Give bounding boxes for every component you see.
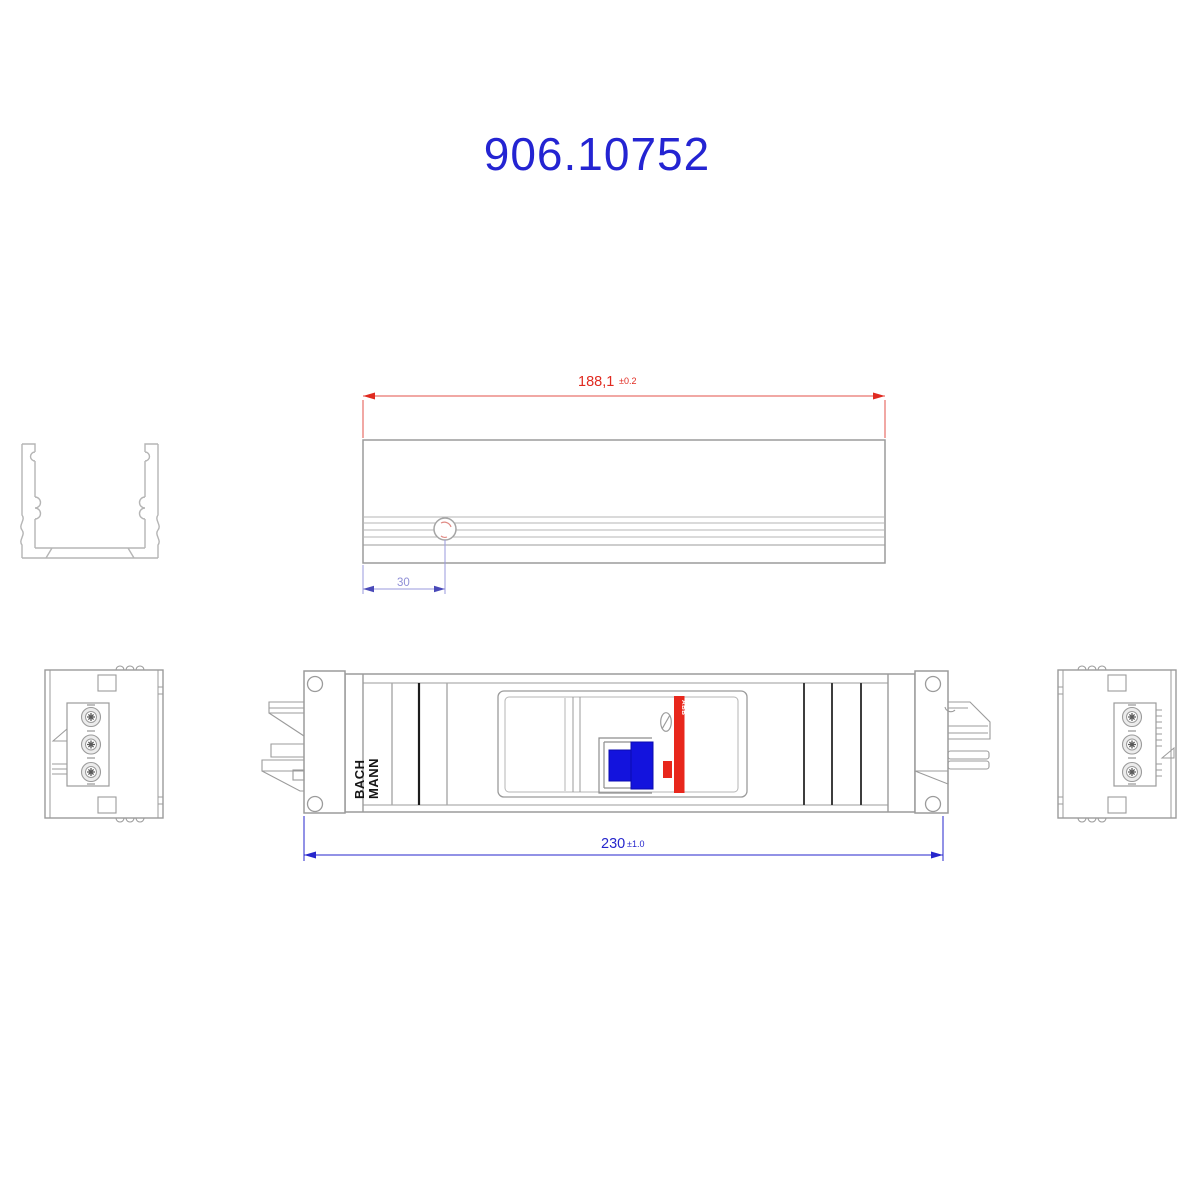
arrowhead-right [434,586,445,592]
terminal-screw [1123,735,1142,754]
right-end-edge-notches [1058,687,1063,804]
profile-right-hook [145,444,158,497]
terminal-screw [1123,763,1142,782]
left-end-outline [45,670,163,818]
right-end-boss-bottom [1108,797,1126,813]
profile-left-hook [22,444,35,497]
left-end-ridges [52,764,67,774]
right-end-cap [915,671,990,813]
technical-drawing-page: 906.10752 [0,0,1200,1200]
right-terminal-screws [1123,708,1142,782]
arrowhead-left [363,393,375,400]
dimension-overall-length: 230 ±1.0 [304,816,943,861]
left-end-boss-top [98,675,116,691]
profile-left-bumps [35,497,41,548]
right-cap-screw-hole-bottom [926,797,941,812]
left-latch [262,702,304,791]
right-cap-screw-hole-top [926,677,941,692]
profile-right-wall [157,444,159,558]
mounting-hole [434,518,456,540]
drawing-canvas: 906.10752 [0,0,1200,1200]
left-cap-screw-hole-bottom [308,797,323,812]
connector-plug-head [631,742,653,789]
arrowhead-right [931,852,943,859]
slotted-screw [661,713,672,732]
arrowhead-left [363,586,374,592]
left-end-wedge [53,729,67,741]
arrowhead-left [304,852,316,859]
profile-right-bumps [140,497,145,548]
left-terminal-screws [82,708,101,782]
rail-profile-section-view [21,444,159,558]
breaker-toggle [663,761,672,778]
brand-label: BACH MANN [352,758,381,799]
dimension-overall-value: 230 [601,836,625,852]
left-end-cap [262,671,345,813]
right-end-wedge [1162,748,1174,758]
terminal-screw [1123,708,1142,727]
brand-label-line2: MANN [366,758,381,799]
right-end-cap-outline [915,671,948,813]
dimension-overall-tolerance: ±1.0 [627,839,644,849]
left-cap-screw-hole-top [308,677,323,692]
front-view: BACH MANN [262,671,990,861]
arrowhead-right [873,393,885,400]
housing-body-outline [345,674,915,812]
right-end-outline [1058,670,1176,818]
terminal-screw [82,735,101,754]
dimension-body-length-value: 188,1 [578,374,614,390]
dimension-body-length-tolerance: ±0.2 [619,376,636,386]
profile-left-wall [21,444,23,558]
brand-label-line1: BACH [352,759,367,799]
dimension-hole-offset-value: 30 [397,577,410,589]
profile-bottom [22,548,158,558]
breaker-brand-label: ABB [680,700,687,715]
left-end-cap-outline [304,671,345,813]
dimension-body-length: 188,1 ±0.2 [363,374,885,438]
right-end-hatch-ticks [1156,710,1162,776]
left-end-boss-bottom [98,797,116,813]
right-end-boss-top [1108,675,1126,691]
terminal-screw [82,708,101,727]
top-view: 188,1 ±0.2 30 [363,374,885,594]
drawing-number-title: 906.10752 [484,128,710,180]
right-end-view [1058,666,1176,822]
terminal-screw [82,763,101,782]
left-end-view [45,666,163,822]
left-end-edge-notches [158,687,163,804]
